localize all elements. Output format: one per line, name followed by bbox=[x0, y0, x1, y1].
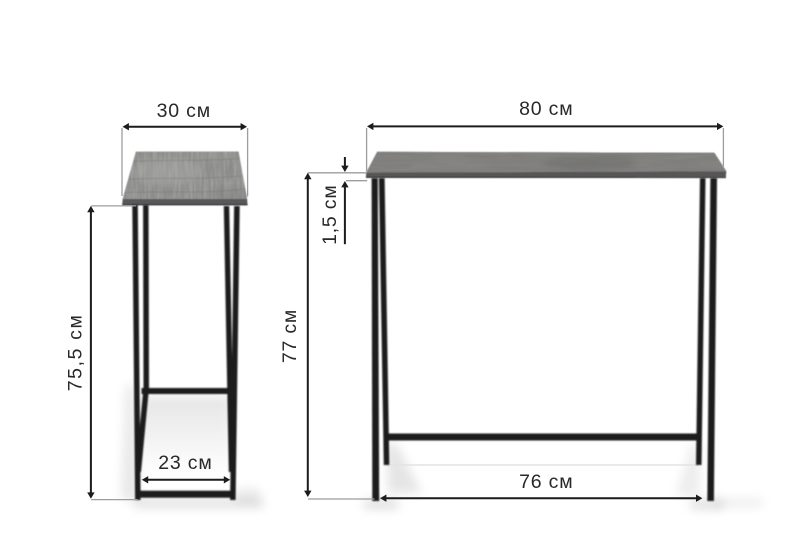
svg-text:75,5 см: 75,5 см bbox=[64, 314, 86, 392]
svg-text:76 см: 76 см bbox=[519, 471, 573, 493]
svg-text:80 см: 80 см bbox=[519, 98, 573, 120]
svg-text:23 см: 23 см bbox=[158, 452, 212, 474]
svg-text:30 см: 30 см bbox=[157, 100, 211, 122]
svg-text:1,5 см: 1,5 см bbox=[319, 184, 341, 244]
svg-text:77 см: 77 см bbox=[279, 309, 301, 363]
